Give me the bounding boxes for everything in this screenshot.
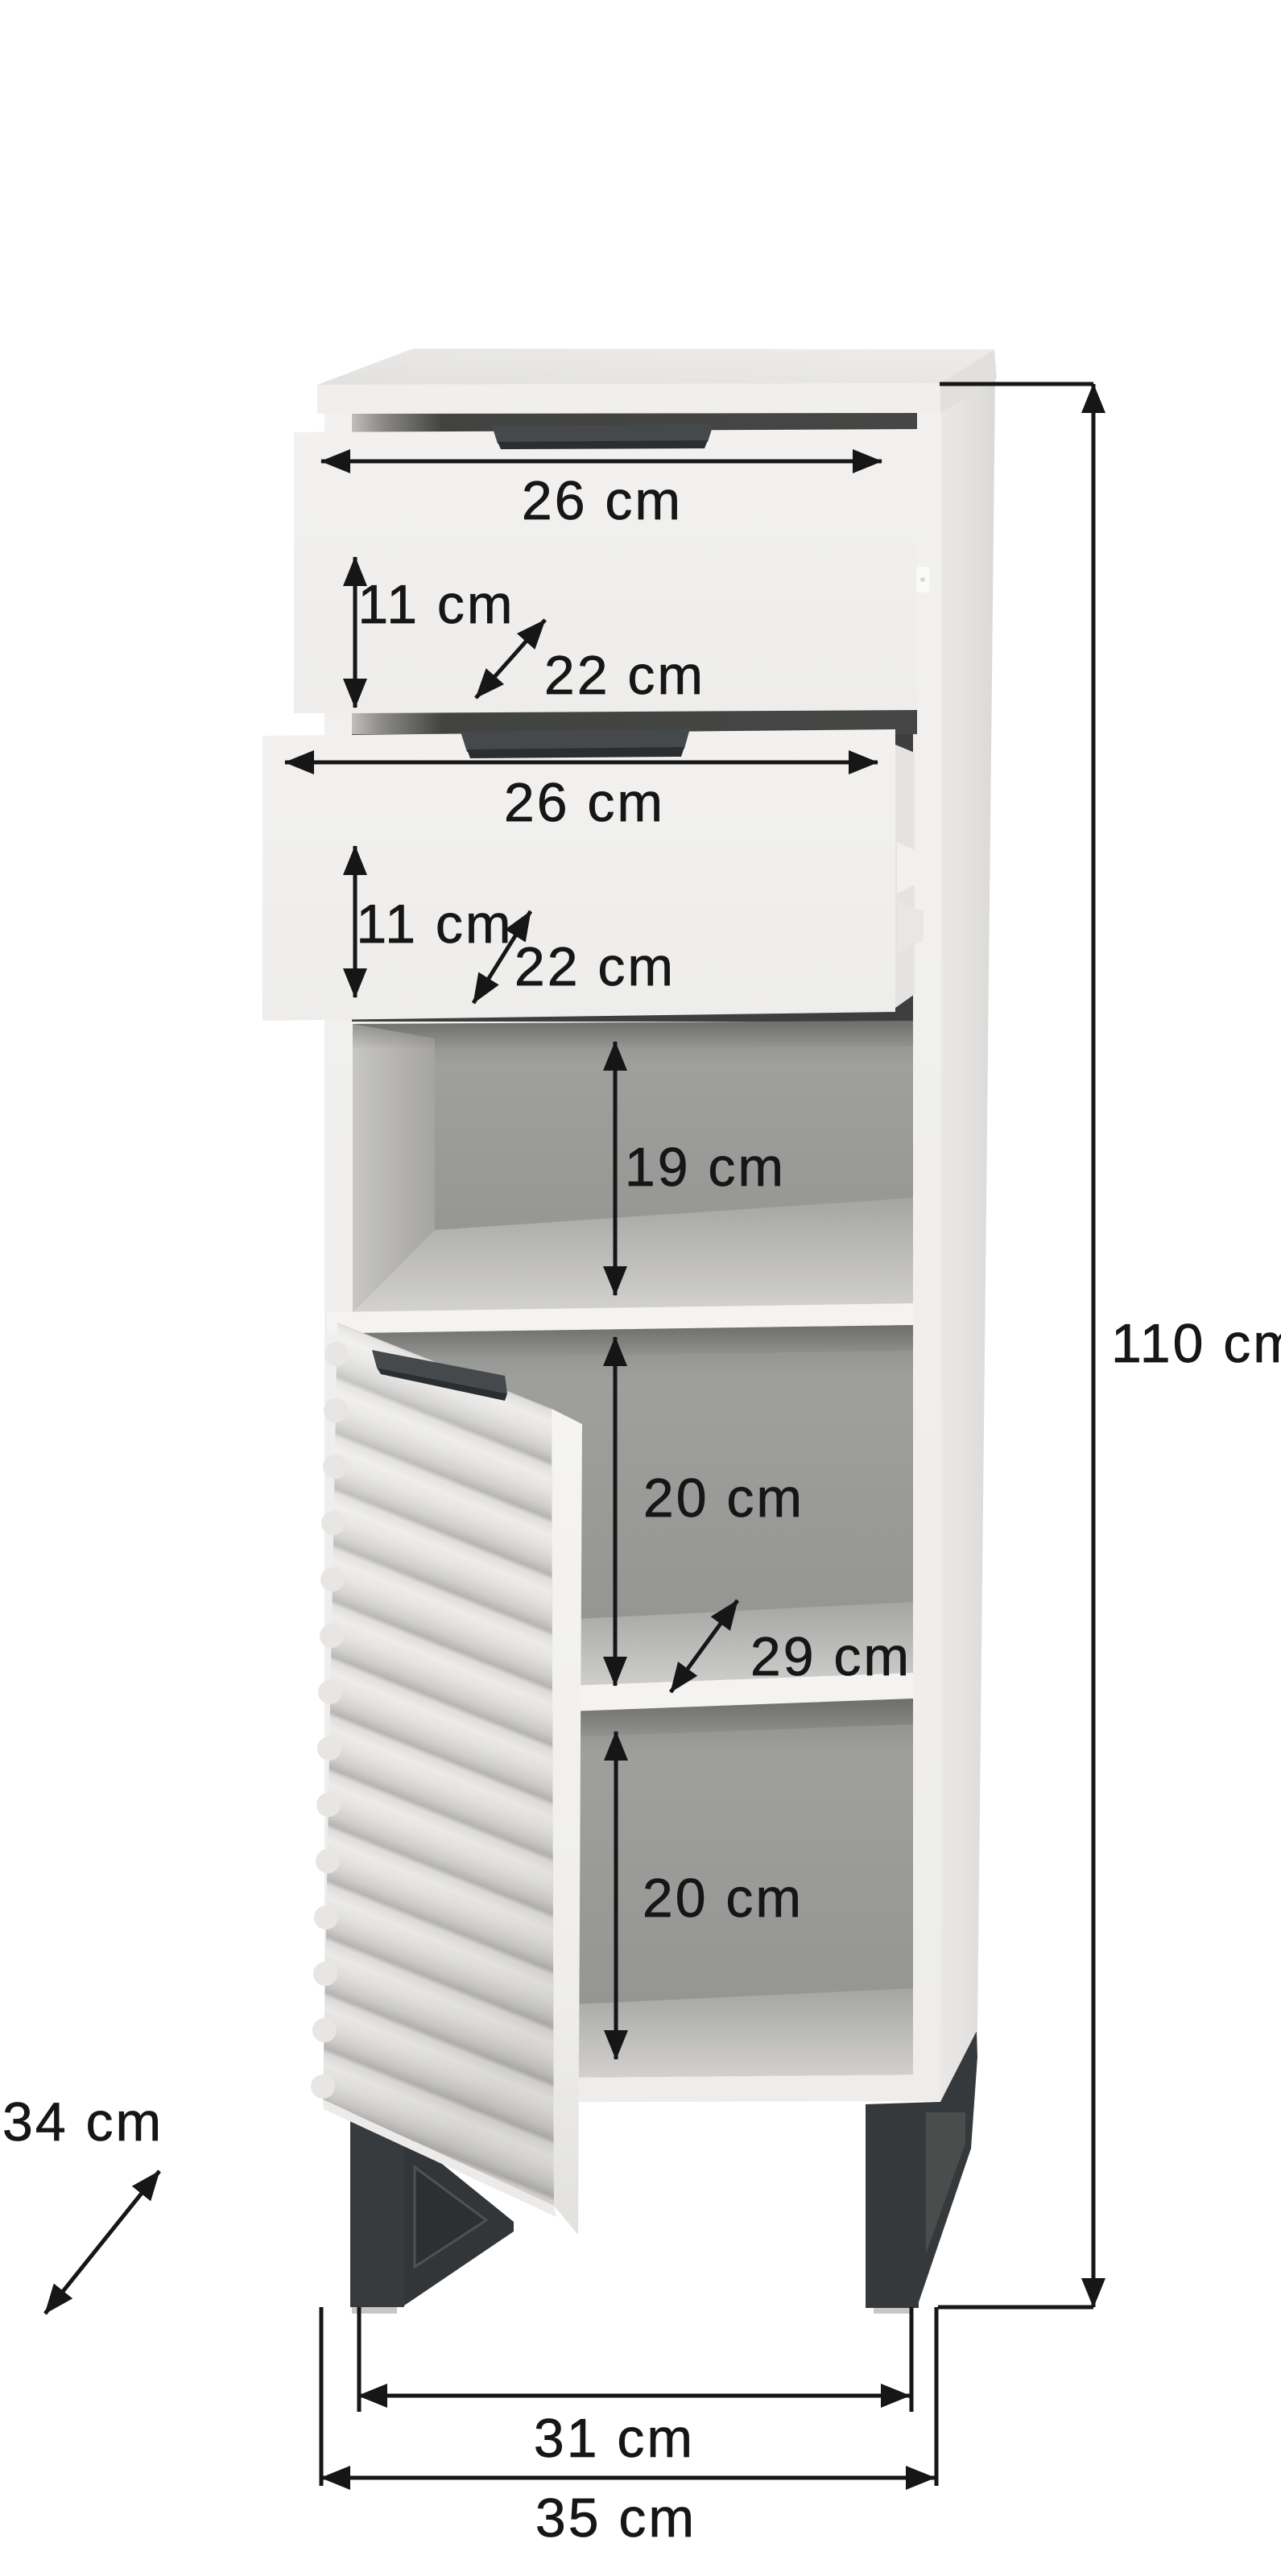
svg-text:26 cm: 26 cm xyxy=(522,470,683,531)
svg-text:35 cm: 35 cm xyxy=(535,2487,696,2549)
svg-text:31 cm: 31 cm xyxy=(534,2408,695,2469)
svg-text:19 cm: 19 cm xyxy=(625,1137,786,1198)
svg-text:20 cm: 20 cm xyxy=(643,1868,804,1929)
svg-text:11 cm: 11 cm xyxy=(357,574,514,635)
svg-text:22 cm: 22 cm xyxy=(544,645,705,706)
svg-text:34 cm: 34 cm xyxy=(2,2091,163,2153)
svg-text:110 cm: 110 cm xyxy=(1111,1313,1281,1374)
svg-text:20 cm: 20 cm xyxy=(643,1468,804,1529)
svg-text:26 cm: 26 cm xyxy=(504,772,665,833)
svg-text:11 cm: 11 cm xyxy=(356,894,513,955)
svg-text:29 cm: 29 cm xyxy=(750,1626,911,1687)
svg-text:22 cm: 22 cm xyxy=(514,936,676,997)
